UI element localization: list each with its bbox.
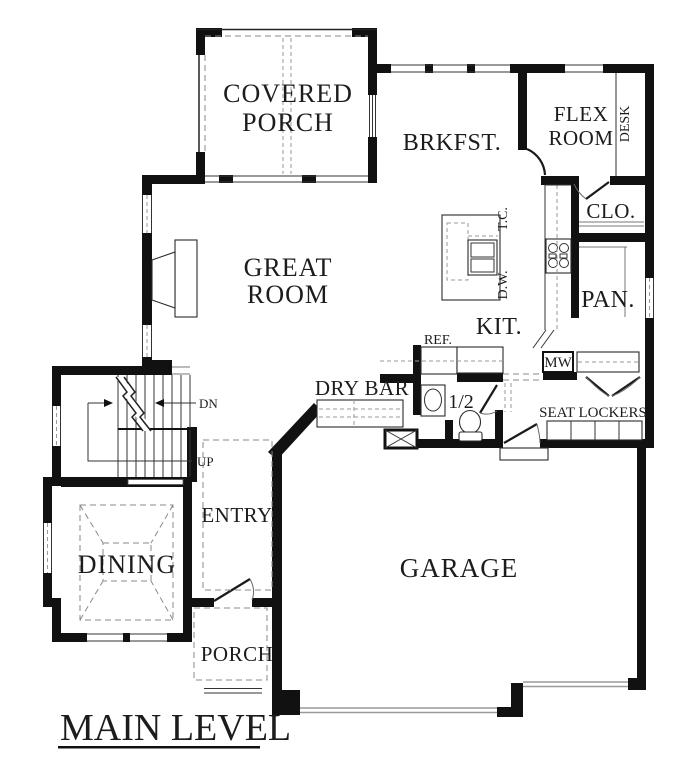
kitchen-island (442, 215, 500, 300)
pantry-cabinet (577, 352, 639, 372)
dining-label: DINING (78, 550, 176, 579)
garage-step (500, 448, 548, 460)
stair-landing-edge (128, 480, 183, 485)
range-cooktop (546, 239, 571, 273)
microwave-label: MW (544, 355, 572, 371)
flex-room-label-line2: ROOM (548, 126, 613, 150)
entry-label: ENTRY (201, 503, 272, 527)
plan-title: MAIN LEVEL (60, 707, 291, 749)
floor-plan-page: COVERED PORCH BRKFST. FLEX ROOM DESK CLO… (0, 0, 673, 768)
brkfst-label: BRKFST. (403, 130, 501, 156)
staircase (88, 375, 197, 485)
half-bath-door (480, 385, 497, 414)
trash-compactor-label: T.C. (496, 207, 511, 231)
dry-bar-label: DRY BAR (315, 376, 409, 400)
seat-lockers-bench (547, 421, 642, 440)
seat-lockers-label: SEAT LOCKERS (539, 405, 647, 421)
covered-porch-label-line1: COVERED (223, 79, 353, 108)
bath-vanity (421, 385, 445, 416)
dry-bar-counter (317, 400, 403, 427)
garage-entry-door (504, 424, 540, 443)
chase-x-box (385, 430, 417, 448)
covered-porch-label-line2: PORCH (242, 108, 334, 137)
floor-transition (503, 374, 543, 412)
closet-door (574, 182, 609, 199)
porch-label: PORCH (201, 642, 274, 666)
pantry-double-doors (586, 377, 640, 396)
half-bath-label: 1/2 (448, 391, 474, 413)
flex-room-door (527, 149, 545, 175)
garage-label: GARAGE (400, 553, 519, 583)
garage-doors (300, 682, 628, 713)
kitchen-label: KIT. (476, 314, 522, 340)
fireplace (152, 240, 197, 317)
stairs-down-label: DN (199, 396, 218, 411)
toilet (459, 411, 482, 442)
floor-plan-drawing: COVERED PORCH BRKFST. FLEX ROOM DESK CLO… (0, 0, 673, 768)
closet-label: CLO. (586, 199, 635, 223)
stairs-up-label: UP (197, 454, 214, 469)
great-room-label-line1: GREAT (244, 253, 333, 282)
plan-title-underline (58, 746, 260, 749)
refrigerator (380, 347, 503, 374)
pantry-label: PAN. (581, 287, 635, 313)
refrigerator-label: REF. (424, 333, 452, 348)
great-room-label-line2: ROOM (247, 280, 329, 309)
desk-label: DESK (618, 106, 633, 143)
dishwasher-label: D.W. (496, 270, 511, 299)
flex-room-label-line1: FLEX (554, 102, 609, 126)
